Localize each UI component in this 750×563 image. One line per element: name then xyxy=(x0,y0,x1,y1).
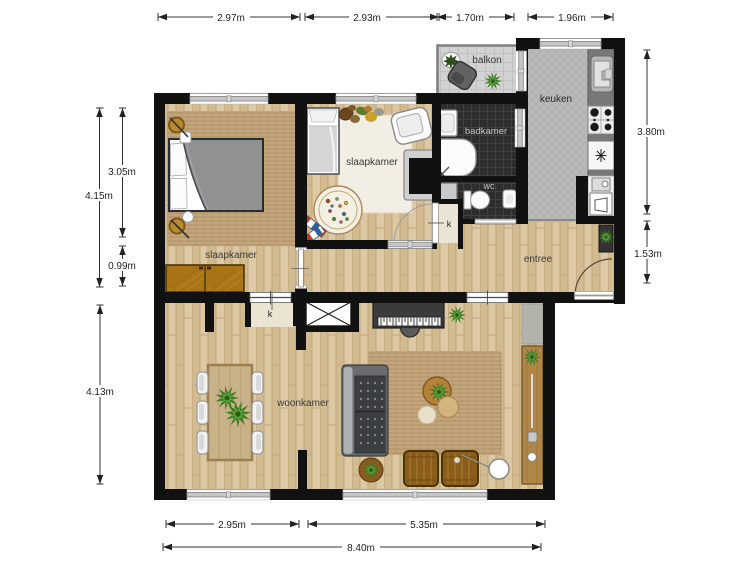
svg-text:badkamer: badkamer xyxy=(465,126,507,137)
svg-text:k: k xyxy=(447,219,452,229)
svg-text:1.53m: 1.53m xyxy=(634,249,662,260)
svg-text:4.13m: 4.13m xyxy=(86,387,114,398)
svg-text:k: k xyxy=(268,309,273,319)
svg-text:entree: entree xyxy=(524,254,553,265)
svg-text:1.96m: 1.96m xyxy=(558,13,586,24)
svg-text:4.15m: 4.15m xyxy=(85,191,113,202)
svg-text:slaapkamer: slaapkamer xyxy=(346,157,398,168)
svg-text:woonkamer: woonkamer xyxy=(276,398,329,409)
svg-text:1.70m: 1.70m xyxy=(456,13,484,24)
svg-text:2.93m: 2.93m xyxy=(353,13,381,24)
svg-text:2.97m: 2.97m xyxy=(217,13,245,24)
svg-text:balkon: balkon xyxy=(472,55,501,66)
svg-text:3.05m: 3.05m xyxy=(108,167,136,178)
svg-text:slaapkamer: slaapkamer xyxy=(205,250,257,261)
svg-text:8.40m: 8.40m xyxy=(347,543,375,554)
svg-text:5.35m: 5.35m xyxy=(410,520,438,531)
svg-text:keuken: keuken xyxy=(540,94,572,105)
svg-text:3.80m: 3.80m xyxy=(637,127,665,138)
svg-text:0.99m: 0.99m xyxy=(108,261,136,272)
svg-text:wc: wc xyxy=(483,181,495,191)
svg-text:2.95m: 2.95m xyxy=(218,520,246,531)
